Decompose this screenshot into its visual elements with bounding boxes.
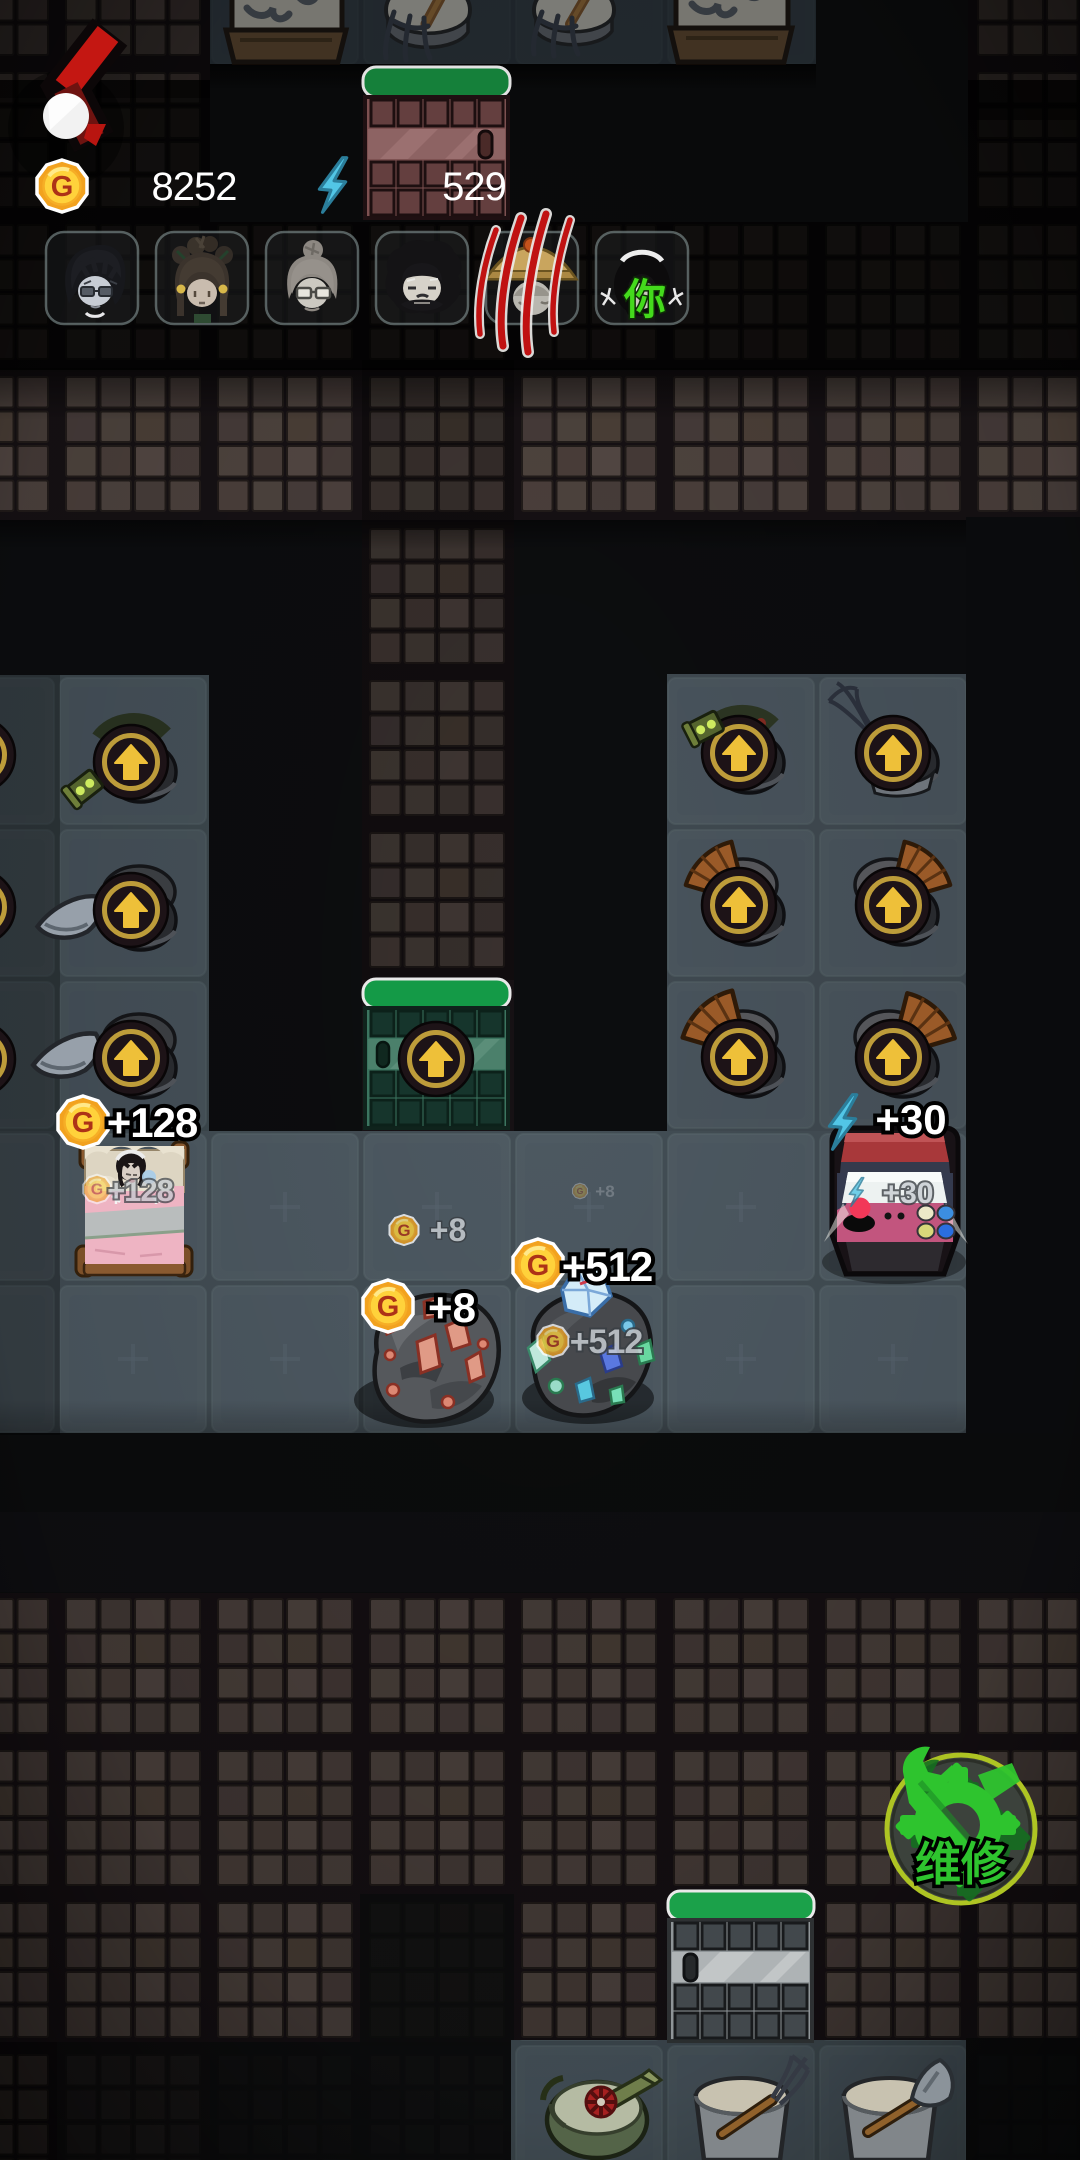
svg-text:+8: +8 bbox=[428, 1284, 476, 1331]
svg-text:8252: 8252 bbox=[152, 165, 237, 209]
svg-text:+128: +128 bbox=[107, 1173, 174, 1208]
svg-text:+128: +128 bbox=[107, 1099, 198, 1146]
svg-text:+30: +30 bbox=[875, 1096, 946, 1143]
svg-text:+8: +8 bbox=[430, 1212, 466, 1248]
svg-text:你: 你 bbox=[623, 276, 666, 323]
svg-text:+512: +512 bbox=[562, 1243, 653, 1290]
svg-text:529: 529 bbox=[442, 165, 506, 209]
svg-text:维修: 维修 bbox=[915, 1838, 1008, 1890]
svg-text:+512: +512 bbox=[570, 1323, 643, 1361]
svg-text:+8: +8 bbox=[595, 1182, 614, 1201]
svg-text:+30: +30 bbox=[883, 1177, 934, 1210]
